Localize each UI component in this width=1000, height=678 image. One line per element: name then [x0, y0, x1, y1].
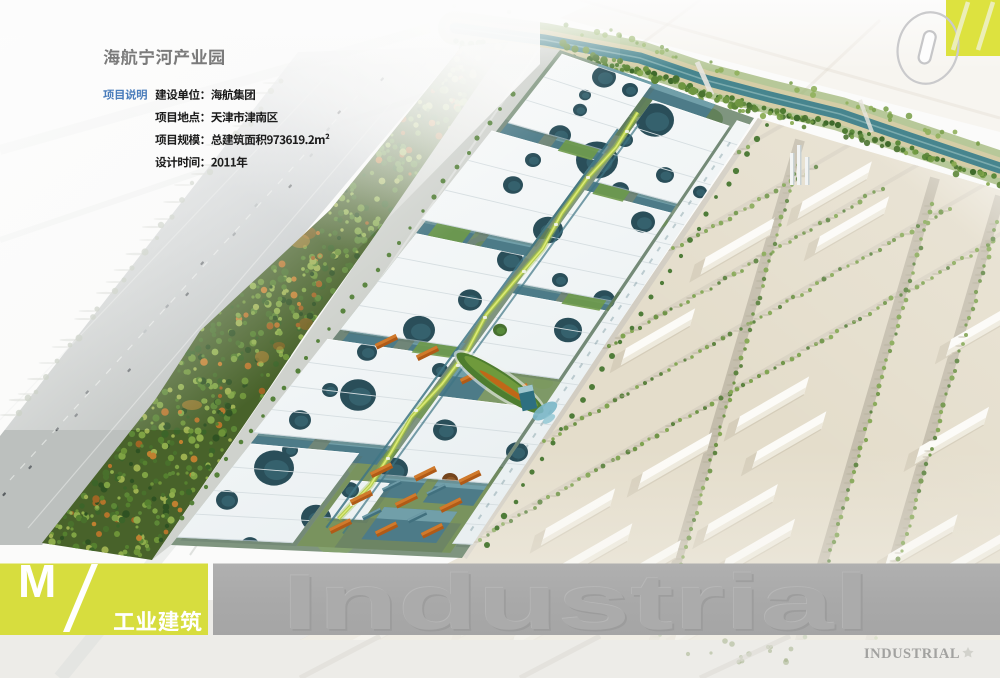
svg-text:Industrial: Industrial [282, 558, 870, 646]
svg-text:INDUSTRIAL: INDUSTRIAL [864, 646, 960, 662]
svg-text:M: M [18, 555, 56, 607]
